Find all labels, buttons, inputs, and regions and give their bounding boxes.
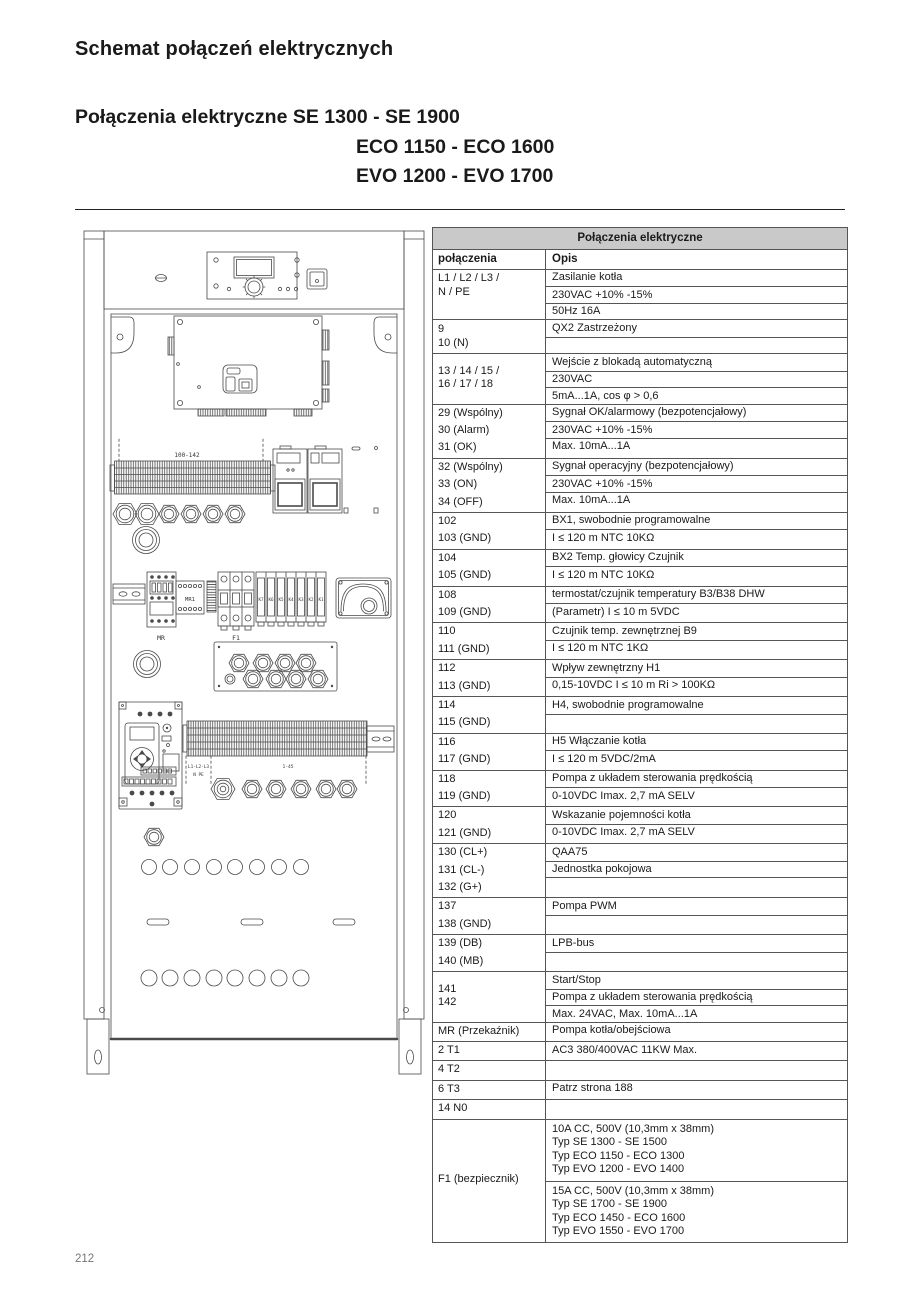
connection-terminals: 141 142 (433, 972, 546, 1022)
connection-description: Sygnał operacyjny (bezpotencjałowy) (546, 459, 847, 476)
connection-terminals: 32 (Wspólny) 33 (ON) 34 (OFF) (433, 459, 546, 512)
connection-group: 4 T2 (433, 1060, 847, 1079)
mr-label: MR (157, 634, 165, 642)
connection-description: 230VAC +10% -15% (546, 286, 847, 303)
cable-glands-row2 (144, 778, 357, 845)
connection-description: 0-10VDC Imax. 2,7 mA SELV (546, 824, 847, 843)
din-rail-assembly: MR MR1 (113, 572, 391, 642)
connection-description: LPB-bus (546, 935, 847, 952)
connection-description: 50Hz 16A (546, 303, 847, 320)
controller-pcb (168, 316, 329, 416)
connection-description: Wejście z blokadą automatyczną (546, 354, 847, 371)
connection-terminals: MR (Przekaźnik) (433, 1023, 546, 1041)
connection-description: H5 Włączanie kotła (546, 734, 847, 751)
connection-group: MR (Przekaźnik)Pompa kotła/obejściowa (433, 1022, 847, 1041)
divider-rule (75, 209, 845, 210)
wiring-diagram: 100-142 (75, 227, 432, 1243)
connection-terminals: 4 T2 (433, 1061, 546, 1079)
connection-description (546, 952, 847, 971)
connection-description: 10A CC, 500V (10,3mm x 38mm) Typ SE 1300… (546, 1120, 847, 1181)
connection-description: Czujnik temp. zewnętrznej B9 (546, 623, 847, 640)
connection-terminals: 6 T3 (433, 1081, 546, 1099)
connection-description: Pompa z układem sterowania prędkością (546, 771, 847, 788)
connection-description (546, 915, 847, 934)
table-header-row: połączenia Opis (433, 250, 847, 270)
connection-description: termostat/czujnik temperatury B3/B38 DHW (546, 587, 847, 604)
subtitle: Połączenia elektryczne SE 1300 - SE 1900… (75, 103, 920, 192)
col-header-polaczenia: połączenia (433, 250, 546, 269)
vfd-drive (119, 702, 182, 809)
connection-description: 0,15-10VDC I ≤ 10 m Ri > 100KΩ (546, 677, 847, 696)
k4-label: K4 (288, 597, 294, 602)
connection-group: 102 103 (GND)BX1, swobodnie programowaln… (433, 512, 847, 549)
connections-table: Połączenia elektryczne połączenia Opis L… (432, 227, 848, 1243)
connection-group: 141 142Start/StopPompa z układem sterowa… (433, 971, 847, 1022)
strip-1-45-label: 1-45 (282, 764, 293, 770)
connection-terminals: 137 138 (GND) (433, 898, 546, 934)
connection-description (546, 1100, 847, 1118)
subtitle-line-2: ECO 1150 - ECO 1600 (75, 133, 920, 163)
connection-description: 5mA...1A, cos φ > 0,6 (546, 387, 847, 404)
mains-label: L1-L2-L3 (188, 764, 210, 770)
connection-description: BX1, swobodnie programowalne (546, 513, 847, 530)
control-panel (156, 252, 300, 299)
npe-label: N PE (193, 772, 204, 778)
connection-group: L1 / L2 / L3 / N / PEZasilanie kotła230V… (433, 270, 847, 320)
cabinet-frame (84, 231, 424, 1074)
subtitle-line-1: Połączenia elektryczne SE 1300 - SE 1900 (75, 103, 920, 133)
connection-description: BX2 Temp. głowicy Czujnik (546, 550, 847, 567)
connection-description: Wskazanie pojemności kotła (546, 807, 847, 824)
k6-label: K6 (268, 597, 274, 602)
page-title: Schemat połączeń elektrycznych (75, 38, 920, 61)
connection-description (546, 337, 847, 354)
connection-description: AC3 380/400VAC 11KW Max. (546, 1042, 847, 1060)
connection-group: 114 115 (GND)H4, swobodnie programowalne (433, 696, 847, 733)
main-switch (307, 269, 327, 289)
connection-group: F1 (bezpiecznik)10A CC, 500V (10,3mm x 3… (433, 1119, 847, 1242)
f1-label: F1 (232, 634, 240, 642)
connection-terminals: 130 (CL+) 131 (CL-) 132 (G+) (433, 844, 546, 897)
k5-label: K5 (278, 597, 284, 602)
connection-description: Zasilanie kotła (546, 270, 847, 287)
connection-description: I ≤ 120 m 5VDC/2mA (546, 750, 847, 769)
connection-terminals: 29 (Wspólny) 30 (Alarm) 31 (OK) (433, 405, 546, 458)
connection-group: 2 T1AC3 380/400VAC 11KW Max. (433, 1041, 847, 1060)
connection-terminals: 114 115 (GND) (433, 697, 546, 733)
relay-modules-k1-k7: K7 K6 K5 K4 K3 K2 K1 (256, 572, 326, 626)
mr1-label: MR1 (185, 597, 195, 603)
connection-description (546, 714, 847, 733)
connection-description: Wpływ zewnętrzny H1 (546, 660, 847, 677)
connection-terminals: 110 111 (GND) (433, 623, 546, 659)
connection-terminals: 104 105 (GND) (433, 550, 546, 586)
col-header-opis: Opis (546, 250, 847, 269)
content-area: 100-142 (75, 227, 920, 1243)
knockout-holes (141, 859, 355, 986)
connection-group: 6 T3Patrz strona 188 (433, 1080, 847, 1099)
connection-terminals: 139 (DB) 140 (MB) (433, 935, 546, 971)
sight-gauge (336, 578, 391, 618)
connection-description: Patrz strona 188 (546, 1081, 847, 1099)
connection-description: Pompa PWM (546, 898, 847, 915)
cabinet-diagram: 100-142 (77, 227, 431, 1117)
k7-label: K7 (258, 597, 264, 602)
connection-terminals: 9 10 (N) (433, 320, 546, 353)
page-number: 212 (75, 1253, 94, 1265)
connection-terminals: 2 T1 (433, 1042, 546, 1060)
contactors (273, 446, 378, 513)
connection-description: 230VAC +10% -15% (546, 475, 847, 492)
connection-description (546, 1061, 847, 1079)
fuse-holder-f1: F1 (218, 572, 254, 642)
connection-terminals: 108 109 (GND) (433, 587, 546, 623)
connection-description: Pompa z układem sterowania prędkością (546, 989, 847, 1006)
connection-description: Max. 10mA...1A (546, 438, 847, 458)
connection-terminals: 14 N0 (433, 1100, 546, 1118)
connection-description (546, 877, 847, 897)
terminal-strip-100-142: 100-142 (110, 439, 275, 494)
connection-group: 118 119 (GND)Pompa z układem sterowania … (433, 770, 847, 807)
connection-description: Sygnał OK/alarmowy (bezpotencjałowy) (546, 405, 847, 422)
connection-group: 110 111 (GND)Czujnik temp. zewnętrznej B… (433, 622, 847, 659)
connection-group: 29 (Wspólny) 30 (Alarm) 31 (OK)Sygnał OK… (433, 404, 847, 458)
connection-group: 14 N0 (433, 1099, 847, 1118)
connection-description: Max. 24VAC, Max. 10mA...1A (546, 1005, 847, 1022)
connection-description: I ≤ 120 m NTC 1KΩ (546, 640, 847, 659)
connection-group: 116 117 (GND)H5 Włączanie kotłaI ≤ 120 m… (433, 733, 847, 770)
connection-description: (Parametr) I ≤ 10 m 5VDC (546, 603, 847, 622)
relay-mr: MR (147, 572, 176, 642)
connection-description: Max. 10mA...1A (546, 492, 847, 512)
connection-group: 9 10 (N)QX2 Zastrzeżony (433, 319, 847, 353)
connection-description: H4, swobodnie programowalne (546, 697, 847, 714)
terminal-strip-1-45: L1-L2-L3 N PE 1-45 (183, 721, 394, 784)
connection-group: 32 (Wspólny) 33 (ON) 34 (OFF)Sygnał oper… (433, 458, 847, 512)
connection-group: 137 138 (GND)Pompa PWM (433, 897, 847, 934)
connection-terminals: 120 121 (GND) (433, 807, 546, 843)
connection-terminals: 102 103 (GND) (433, 513, 546, 549)
connection-description: I ≤ 120 m NTC 10KΩ (546, 566, 847, 585)
connection-terminals: 116 117 (GND) (433, 734, 546, 770)
terminal-mr1: MR1 (176, 581, 204, 614)
strip-100-142-label: 100-142 (174, 452, 200, 459)
connection-description: 0-10VDC Imax. 2,7 mA SELV (546, 787, 847, 806)
connection-group: 139 (DB) 140 (MB)LPB-bus (433, 934, 847, 971)
connection-description: Start/Stop (546, 972, 847, 989)
k1-label: K1 (318, 597, 324, 602)
connection-group: 104 105 (GND)BX2 Temp. głowicy CzujnikI … (433, 549, 847, 586)
connection-description: 230VAC +10% -15% (546, 421, 847, 438)
connection-description: I ≤ 120 m NTC 10KΩ (546, 529, 847, 548)
connection-terminals: L1 / L2 / L3 / N / PE (433, 270, 546, 320)
connection-description: QX2 Zastrzeżony (546, 320, 847, 337)
k3-label: K3 (298, 597, 304, 602)
connection-group: 13 / 14 / 15 / 16 / 17 / 18Wejście z blo… (433, 353, 847, 404)
connection-group: 112 113 (GND)Wpływ zewnętrzny H10,15-10V… (433, 659, 847, 696)
connection-description: QAA75 (546, 844, 847, 861)
connection-terminals: 112 113 (GND) (433, 660, 546, 696)
connection-terminals: F1 (bezpiecznik) (433, 1120, 546, 1242)
connection-group: 120 121 (GND)Wskazanie pojemności kotła0… (433, 806, 847, 843)
connection-description: 15A CC, 500V (10,3mm x 38mm) Typ SE 1700… (546, 1181, 847, 1242)
connection-description: Pompa kotła/obejściowa (546, 1023, 847, 1041)
k2-label: K2 (308, 597, 314, 602)
connection-group: 130 (CL+) 131 (CL-) 132 (G+)QAA75Jednost… (433, 843, 847, 897)
connection-terminals: 118 119 (GND) (433, 771, 546, 807)
connection-terminals: 13 / 14 / 15 / 16 / 17 / 18 (433, 354, 546, 404)
connection-description: 230VAC (546, 371, 847, 388)
connection-group: 108 109 (GND)termostat/czujnik temperatu… (433, 586, 847, 623)
subtitle-line-3: EVO 1200 - EVO 1700 (75, 162, 920, 192)
cable-glands-box (134, 642, 338, 691)
cable-glands-row1 (113, 503, 245, 553)
table-title: Połączenia elektryczne (433, 228, 847, 250)
document-page: Schemat połączeń elektrycznych Połączeni… (0, 0, 920, 1243)
connections-body: L1 / L2 / L3 / N / PEZasilanie kotła230V… (433, 270, 847, 1242)
connection-description: Jednostka pokojowa (546, 861, 847, 878)
